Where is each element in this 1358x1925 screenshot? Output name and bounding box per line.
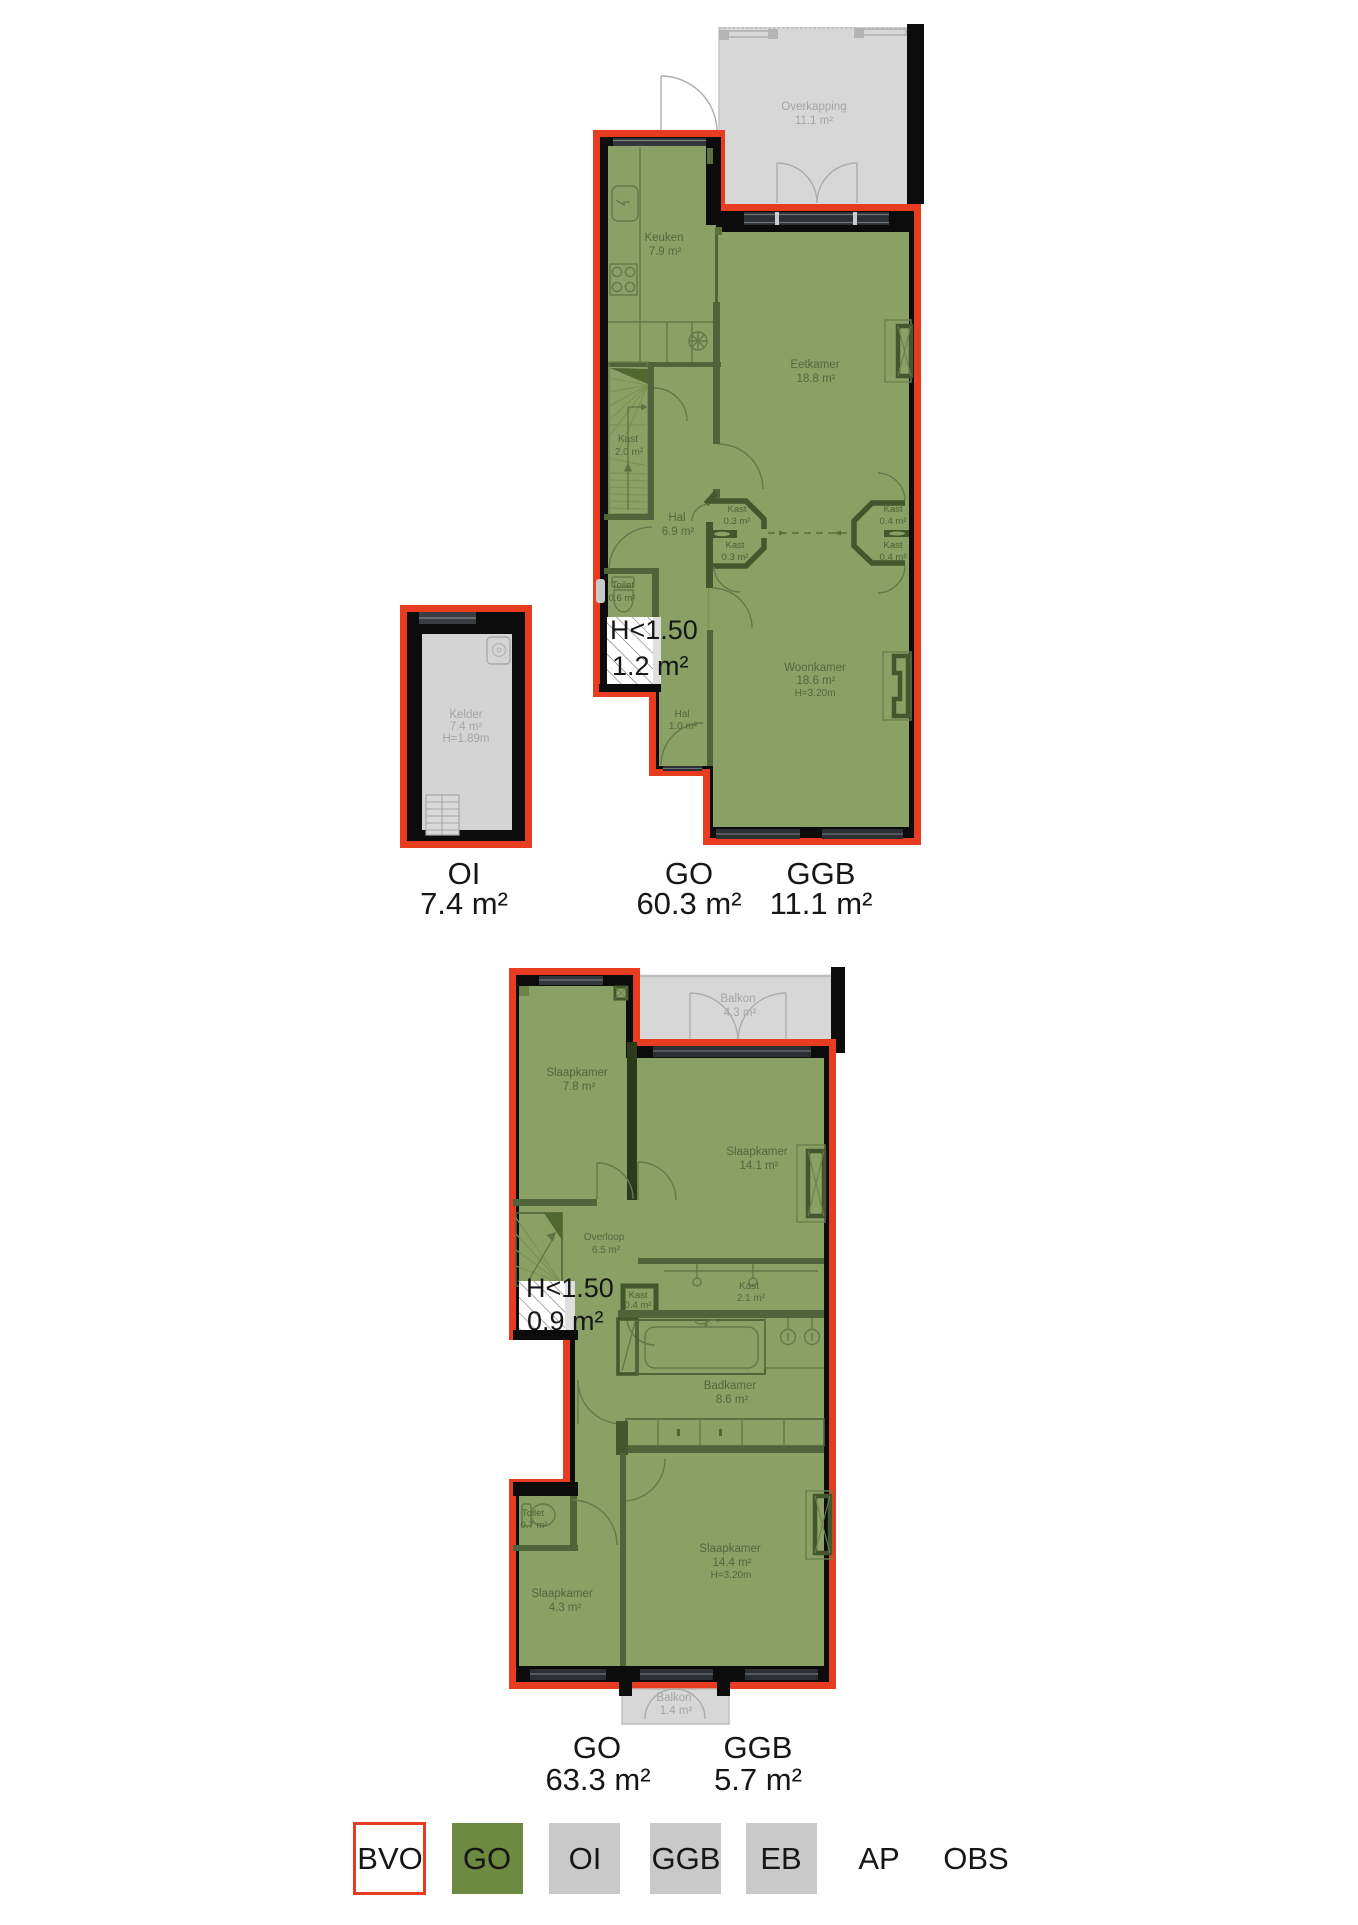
- svg-text:0.3 m²: 0.3 m²: [724, 516, 751, 527]
- svg-text:Balkon: Balkon: [656, 1692, 691, 1704]
- svg-text:7.9 m²: 7.9 m²: [649, 246, 682, 258]
- svg-text:Hal: Hal: [668, 512, 685, 524]
- svg-text:H<1.50: H<1.50: [610, 615, 698, 645]
- svg-text:GO: GO: [463, 1841, 511, 1876]
- svg-text:63.3 m²: 63.3 m²: [545, 1762, 650, 1797]
- svg-text:Slaapkamer: Slaapkamer: [546, 1067, 608, 1079]
- svg-text:Eetkamer: Eetkamer: [790, 359, 839, 371]
- svg-text:Toilet: Toilet: [522, 1508, 545, 1519]
- svg-text:0.4 m²: 0.4 m²: [625, 1300, 652, 1311]
- svg-text:2.1 m²: 2.1 m²: [737, 1293, 766, 1304]
- svg-text:Balkon: Balkon: [720, 993, 755, 1005]
- svg-text:Kast: Kast: [727, 504, 746, 515]
- svg-text:6.5 m²: 6.5 m²: [592, 1245, 621, 1256]
- svg-text:0.3 m²: 0.3 m²: [722, 552, 749, 563]
- svg-text:4.3 m²: 4.3 m²: [724, 1007, 757, 1019]
- svg-text:Kast: Kast: [883, 504, 902, 515]
- svg-text:0.9 m²: 0.9 m²: [527, 1306, 604, 1336]
- svg-text:OI: OI: [569, 1841, 602, 1876]
- svg-text:Kast: Kast: [883, 540, 902, 551]
- svg-text:Badkamer: Badkamer: [704, 1380, 757, 1392]
- svg-text:14.4 m²: 14.4 m²: [713, 1557, 752, 1569]
- svg-text:14.1 m²: 14.1 m²: [740, 1160, 779, 1172]
- svg-text:1.0 m²: 1.0 m²: [669, 721, 698, 732]
- svg-text:Kast: Kast: [618, 434, 638, 445]
- svg-text:Slaapkamer: Slaapkamer: [699, 1543, 761, 1555]
- svg-text:Slaapkamer: Slaapkamer: [726, 1146, 788, 1158]
- svg-text:Kast: Kast: [725, 540, 744, 551]
- svg-text:5.7 m²: 5.7 m²: [714, 1762, 802, 1797]
- svg-text:18.6 m²: 18.6 m²: [797, 675, 836, 687]
- svg-text:Overkapping: Overkapping: [781, 101, 846, 113]
- svg-text:6.9 m²: 6.9 m²: [662, 526, 695, 538]
- svg-text:Toilet: Toilet: [612, 580, 635, 591]
- svg-text:7.8 m²: 7.8 m²: [563, 1081, 596, 1093]
- svg-text:AP: AP: [858, 1841, 899, 1876]
- svg-text:8.6 m²: 8.6 m²: [716, 1394, 749, 1406]
- svg-text:0.4 m²: 0.4 m²: [880, 516, 907, 527]
- svg-text:1.4 m²: 1.4 m²: [660, 1705, 693, 1717]
- svg-text:0.4 m²: 0.4 m²: [880, 552, 907, 563]
- svg-text:11.1 m²: 11.1 m²: [770, 886, 873, 921]
- svg-text:7.4 m²: 7.4 m²: [420, 886, 508, 921]
- svg-text:Kelder: Kelder: [449, 709, 482, 721]
- svg-text:Overloop: Overloop: [584, 1232, 625, 1243]
- svg-text:H=1.89m: H=1.89m: [443, 733, 490, 745]
- svg-text:Woonkamer: Woonkamer: [784, 662, 846, 674]
- svg-text:7.4 m²: 7.4 m²: [450, 721, 483, 733]
- svg-text:18.8 m²: 18.8 m²: [797, 373, 836, 385]
- svg-text:OBS: OBS: [943, 1841, 1008, 1876]
- svg-text:EB: EB: [760, 1841, 801, 1876]
- svg-text:Slaapkamer: Slaapkamer: [531, 1588, 593, 1600]
- svg-text:0.7 m²: 0.7 m²: [521, 1520, 548, 1531]
- svg-text:GGB: GGB: [724, 1730, 793, 1765]
- svg-text:GGB: GGB: [652, 1841, 721, 1876]
- svg-text:Kast: Kast: [739, 1281, 759, 1292]
- svg-text:11.1 m²: 11.1 m²: [795, 115, 833, 127]
- svg-text:GO: GO: [573, 1730, 621, 1765]
- svg-text:H=3.20m: H=3.20m: [711, 1570, 752, 1581]
- svg-text:1.2 m²: 1.2 m²: [612, 651, 689, 681]
- svg-text:Hal: Hal: [674, 709, 689, 720]
- svg-text:H<1.50: H<1.50: [526, 1273, 614, 1303]
- svg-text:H=3.20m: H=3.20m: [795, 688, 836, 699]
- svg-text:60.3 m²: 60.3 m²: [636, 886, 741, 921]
- svg-text:0.6 m²: 0.6 m²: [609, 593, 636, 604]
- svg-text:BVO: BVO: [357, 1841, 422, 1876]
- svg-text:2.0 m²: 2.0 m²: [615, 447, 644, 458]
- svg-text:4.3 m²: 4.3 m²: [549, 1602, 582, 1614]
- svg-text:Keuken: Keuken: [644, 232, 683, 244]
